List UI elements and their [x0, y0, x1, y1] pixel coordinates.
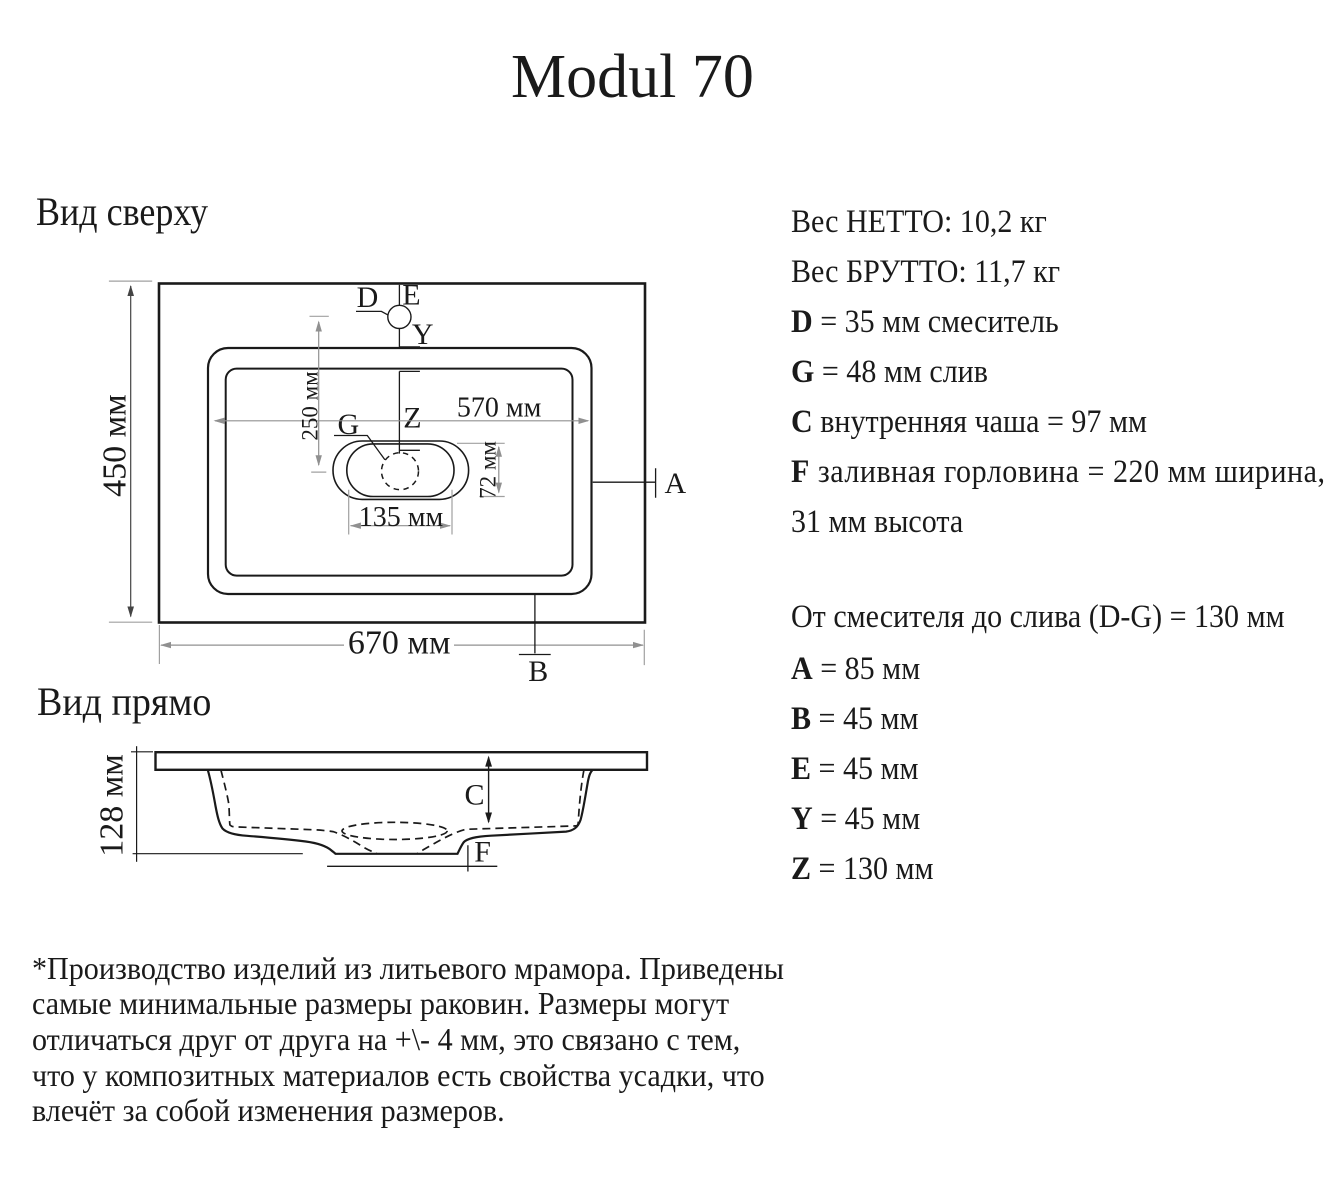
svg-text:Z: Z — [403, 401, 421, 434]
svg-text:72 мм: 72 мм — [476, 441, 501, 499]
svg-text:B: B — [528, 655, 548, 688]
svg-text:E: E — [402, 279, 420, 312]
svg-text:450 мм: 450 мм — [96, 394, 133, 497]
svg-text:D: D — [357, 281, 379, 314]
svg-text:570 мм: 570 мм — [457, 393, 542, 424]
svg-text:128 мм: 128 мм — [94, 754, 131, 857]
svg-text:670 мм: 670 мм — [348, 625, 451, 662]
svg-text:F: F — [474, 835, 491, 868]
svg-text:A: A — [665, 467, 687, 500]
svg-text:250 мм: 250 мм — [297, 371, 322, 441]
svg-text:C: C — [465, 779, 485, 812]
svg-text:135 мм: 135 мм — [359, 502, 444, 533]
